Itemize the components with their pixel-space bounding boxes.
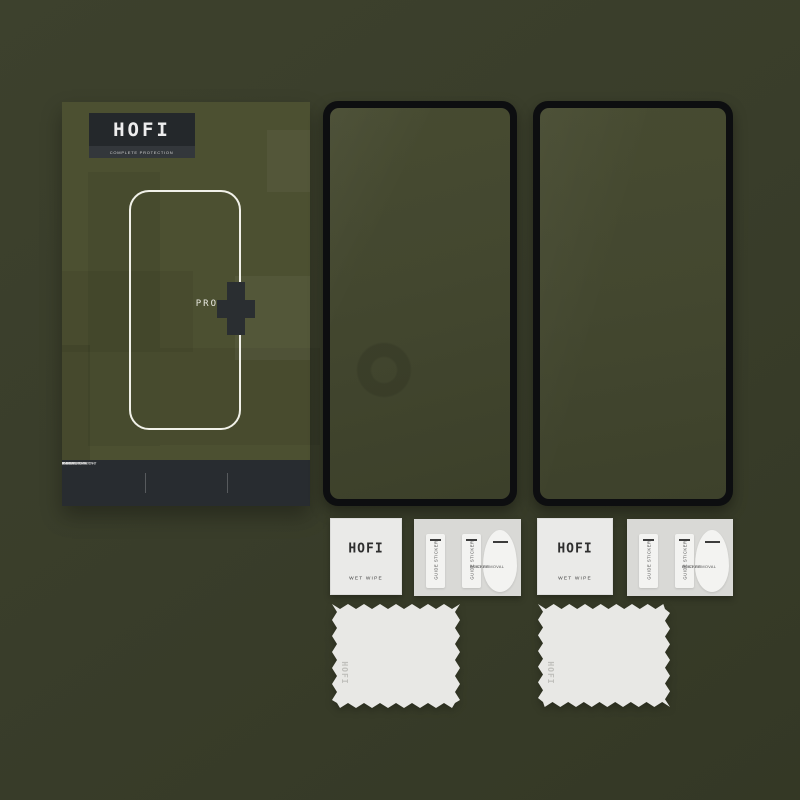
dust-removal-sticker: DUST REMOVAL STICKER (483, 530, 517, 592)
tagline: COMPLETE PROTECTION (89, 146, 195, 158)
sticker-mark (493, 541, 508, 543)
guide-sticker: GUIDE STICKER (639, 534, 658, 588)
dust-removal-sticker: DUST REMOVAL STICKER (695, 530, 729, 592)
brand-badge: HOFI COMPLETE PROTECTION (89, 113, 195, 158)
glass-surface (330, 108, 510, 499)
box-pattern (62, 345, 90, 462)
sticker-sheet-1: GUIDE STICKER GUIDE STICKER DUST REMOVAL… (414, 519, 521, 596)
microfiber-cloth-2: HOFI (538, 604, 670, 707)
hofi-logo: HOFI (89, 113, 195, 146)
guide-sticker: GUIDE STICKER (426, 534, 445, 588)
glass-screen-protector-1 (323, 101, 517, 506)
wet-wipe-packet-2: HOFI WET WIPE (537, 518, 613, 595)
sticker-mark (705, 541, 720, 543)
glass-surface (540, 108, 726, 499)
plus-icon (217, 300, 255, 318)
packaging-box: HOFI COMPLETE PROTECTION PRO ANTI FINGER… (62, 102, 310, 506)
feature-divider (145, 473, 146, 493)
model-label: PRO (184, 299, 218, 309)
feature-strip: ANTI FINGERPRINT SCRATCH RESISTANT IMPAC… (62, 460, 310, 506)
cloth-surface: HOFI (538, 604, 670, 707)
box-pattern (235, 276, 310, 360)
glass-screen-protector-2 (533, 101, 733, 506)
hofi-logo: HOFI (339, 659, 349, 687)
wet-wipe-packet-1: HOFI WET WIPE (330, 518, 402, 595)
cloth-surface: HOFI (332, 604, 460, 708)
guide-sticker: GUIDE STICKER (675, 534, 694, 588)
wet-wipe-label: WET WIPE (349, 575, 383, 580)
tagline-text: COMPLETE PROTECTION (110, 150, 174, 155)
wet-wipe-label: WET WIPE (558, 575, 592, 580)
microfiber-cloth-1: HOFI (332, 604, 460, 708)
sticker-sheet-2: GUIDE STICKER GUIDE STICKER DUST REMOVAL… (627, 519, 733, 596)
product-photo: HOFI COMPLETE PROTECTION PRO ANTI FINGER… (0, 0, 800, 800)
guide-sticker: GUIDE STICKER (462, 534, 481, 588)
box-pattern (267, 130, 310, 192)
hofi-logo: HOFI (545, 659, 555, 687)
hofi-logo: HOFI (557, 542, 592, 557)
feature-divider (227, 473, 228, 493)
hofi-logo: HOFI (348, 542, 383, 557)
